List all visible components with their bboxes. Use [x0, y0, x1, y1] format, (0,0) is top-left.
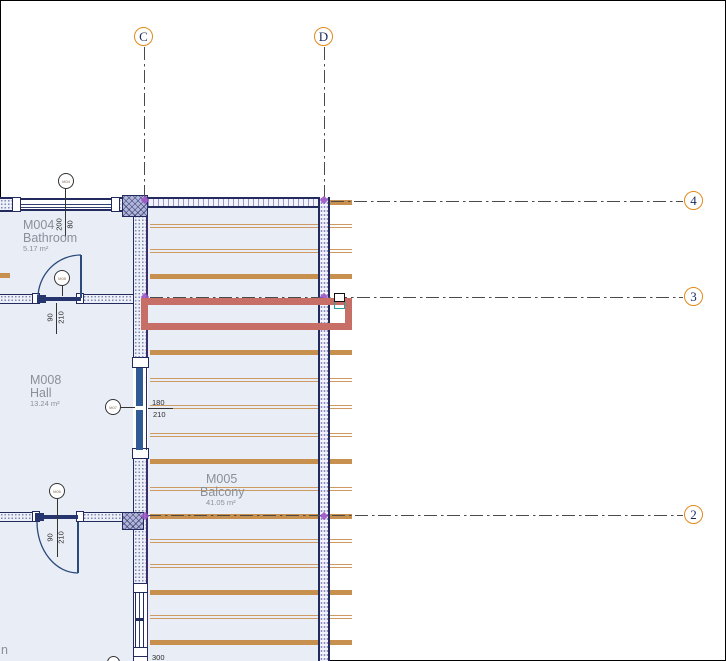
- grid-bubble-2[interactable]: 2: [684, 505, 703, 524]
- dim-text-cut[interactable]: 300: [152, 653, 165, 661]
- tag-text: M07: [109, 405, 117, 410]
- joist-stub[interactable]: [330, 590, 352, 595]
- joist-stub[interactable]: [330, 487, 352, 492]
- joist-stub[interactable]: [330, 274, 352, 279]
- dim-text[interactable]: 180: [152, 398, 165, 407]
- room-tag-hall[interactable]: M008 Hall 13.24 m²: [30, 374, 61, 408]
- joist-line[interactable]: [150, 564, 318, 569]
- joist-line[interactable]: [150, 615, 318, 620]
- grid-bubble-4[interactable]: 4: [684, 191, 703, 210]
- joist-stub[interactable]: [330, 350, 352, 355]
- floor-plan-canvas: CD432 M04 M08 M07 M06 200 80 90 210 180 …: [0, 0, 726, 661]
- grid-line-2[interactable]: [148, 515, 683, 516]
- joist-stub[interactable]: [330, 615, 352, 620]
- room-label-cut: n: [1, 644, 8, 657]
- joist-line[interactable]: [150, 459, 318, 464]
- grid-end-marker: [320, 196, 328, 204]
- joist-stub[interactable]: [330, 249, 352, 254]
- joist-line[interactable]: [150, 590, 318, 595]
- joist-stub[interactable]: [330, 405, 352, 410]
- joist-line[interactable]: [150, 350, 318, 355]
- door-tag[interactable]: M06: [49, 483, 65, 499]
- dim-text[interactable]: 90: [46, 526, 55, 550]
- room-area: 13.24 m²: [30, 400, 61, 408]
- joist-stub[interactable]: [330, 433, 352, 438]
- grid-end-marker: [141, 196, 149, 204]
- grid-line-C[interactable]: [144, 47, 145, 197]
- room-tag-balcony[interactable]: M005 Balcony 41.05 m²: [200, 473, 244, 507]
- selection-handle-black[interactable]: [334, 293, 345, 302]
- joist-line[interactable]: [150, 640, 318, 645]
- tag-text: M04: [62, 179, 70, 184]
- grid-end-marker: [320, 512, 328, 520]
- joist-stub[interactable]: [330, 640, 352, 645]
- joist-stub[interactable]: [330, 564, 352, 569]
- grid-line-D[interactable]: [324, 47, 325, 197]
- door-tag[interactable]: M08: [54, 270, 70, 286]
- joist-stub[interactable]: [330, 459, 352, 464]
- joist-line[interactable]: [150, 433, 318, 438]
- window-tag[interactable]: M04: [58, 173, 74, 189]
- joist-line[interactable]: [150, 378, 318, 383]
- grid-bubble-D[interactable]: D: [314, 27, 333, 46]
- dim-text[interactable]: 210: [57, 526, 66, 550]
- joist-stub[interactable]: [330, 378, 352, 383]
- joist-stub[interactable]: [330, 224, 352, 229]
- dim-text[interactable]: 210: [56, 306, 65, 330]
- tag-leader: [62, 286, 63, 296]
- joist-line[interactable]: [150, 274, 318, 279]
- joist-line[interactable]: [150, 405, 318, 410]
- tag-text: M06: [53, 489, 61, 494]
- joist-stub[interactable]: [330, 539, 352, 544]
- selected-element-highlight[interactable]: [141, 298, 352, 330]
- joist-line[interactable]: [150, 539, 318, 544]
- dim-text[interactable]: 90: [46, 306, 55, 330]
- joist-stub-left[interactable]: [0, 273, 10, 278]
- dim-text[interactable]: 210: [153, 410, 166, 419]
- grid-bubble-C[interactable]: C: [134, 27, 153, 46]
- grid-line-4[interactable]: [331, 201, 683, 202]
- dim-line: [148, 408, 173, 409]
- tag-leader: [121, 407, 135, 408]
- room-area: 5.17 m²: [23, 245, 77, 253]
- grid-bubble-3[interactable]: 3: [684, 287, 703, 306]
- room-area: 41.05 m²: [200, 499, 244, 507]
- door-tag[interactable]: M07: [105, 399, 121, 415]
- tag-text: M08: [58, 276, 66, 281]
- joist-line[interactable]: [150, 249, 318, 254]
- grid-end-marker: [141, 512, 149, 520]
- room-tag-bathroom[interactable]: M004 Bathroom 5.17 m²: [23, 219, 77, 253]
- joist-line[interactable]: [150, 224, 318, 229]
